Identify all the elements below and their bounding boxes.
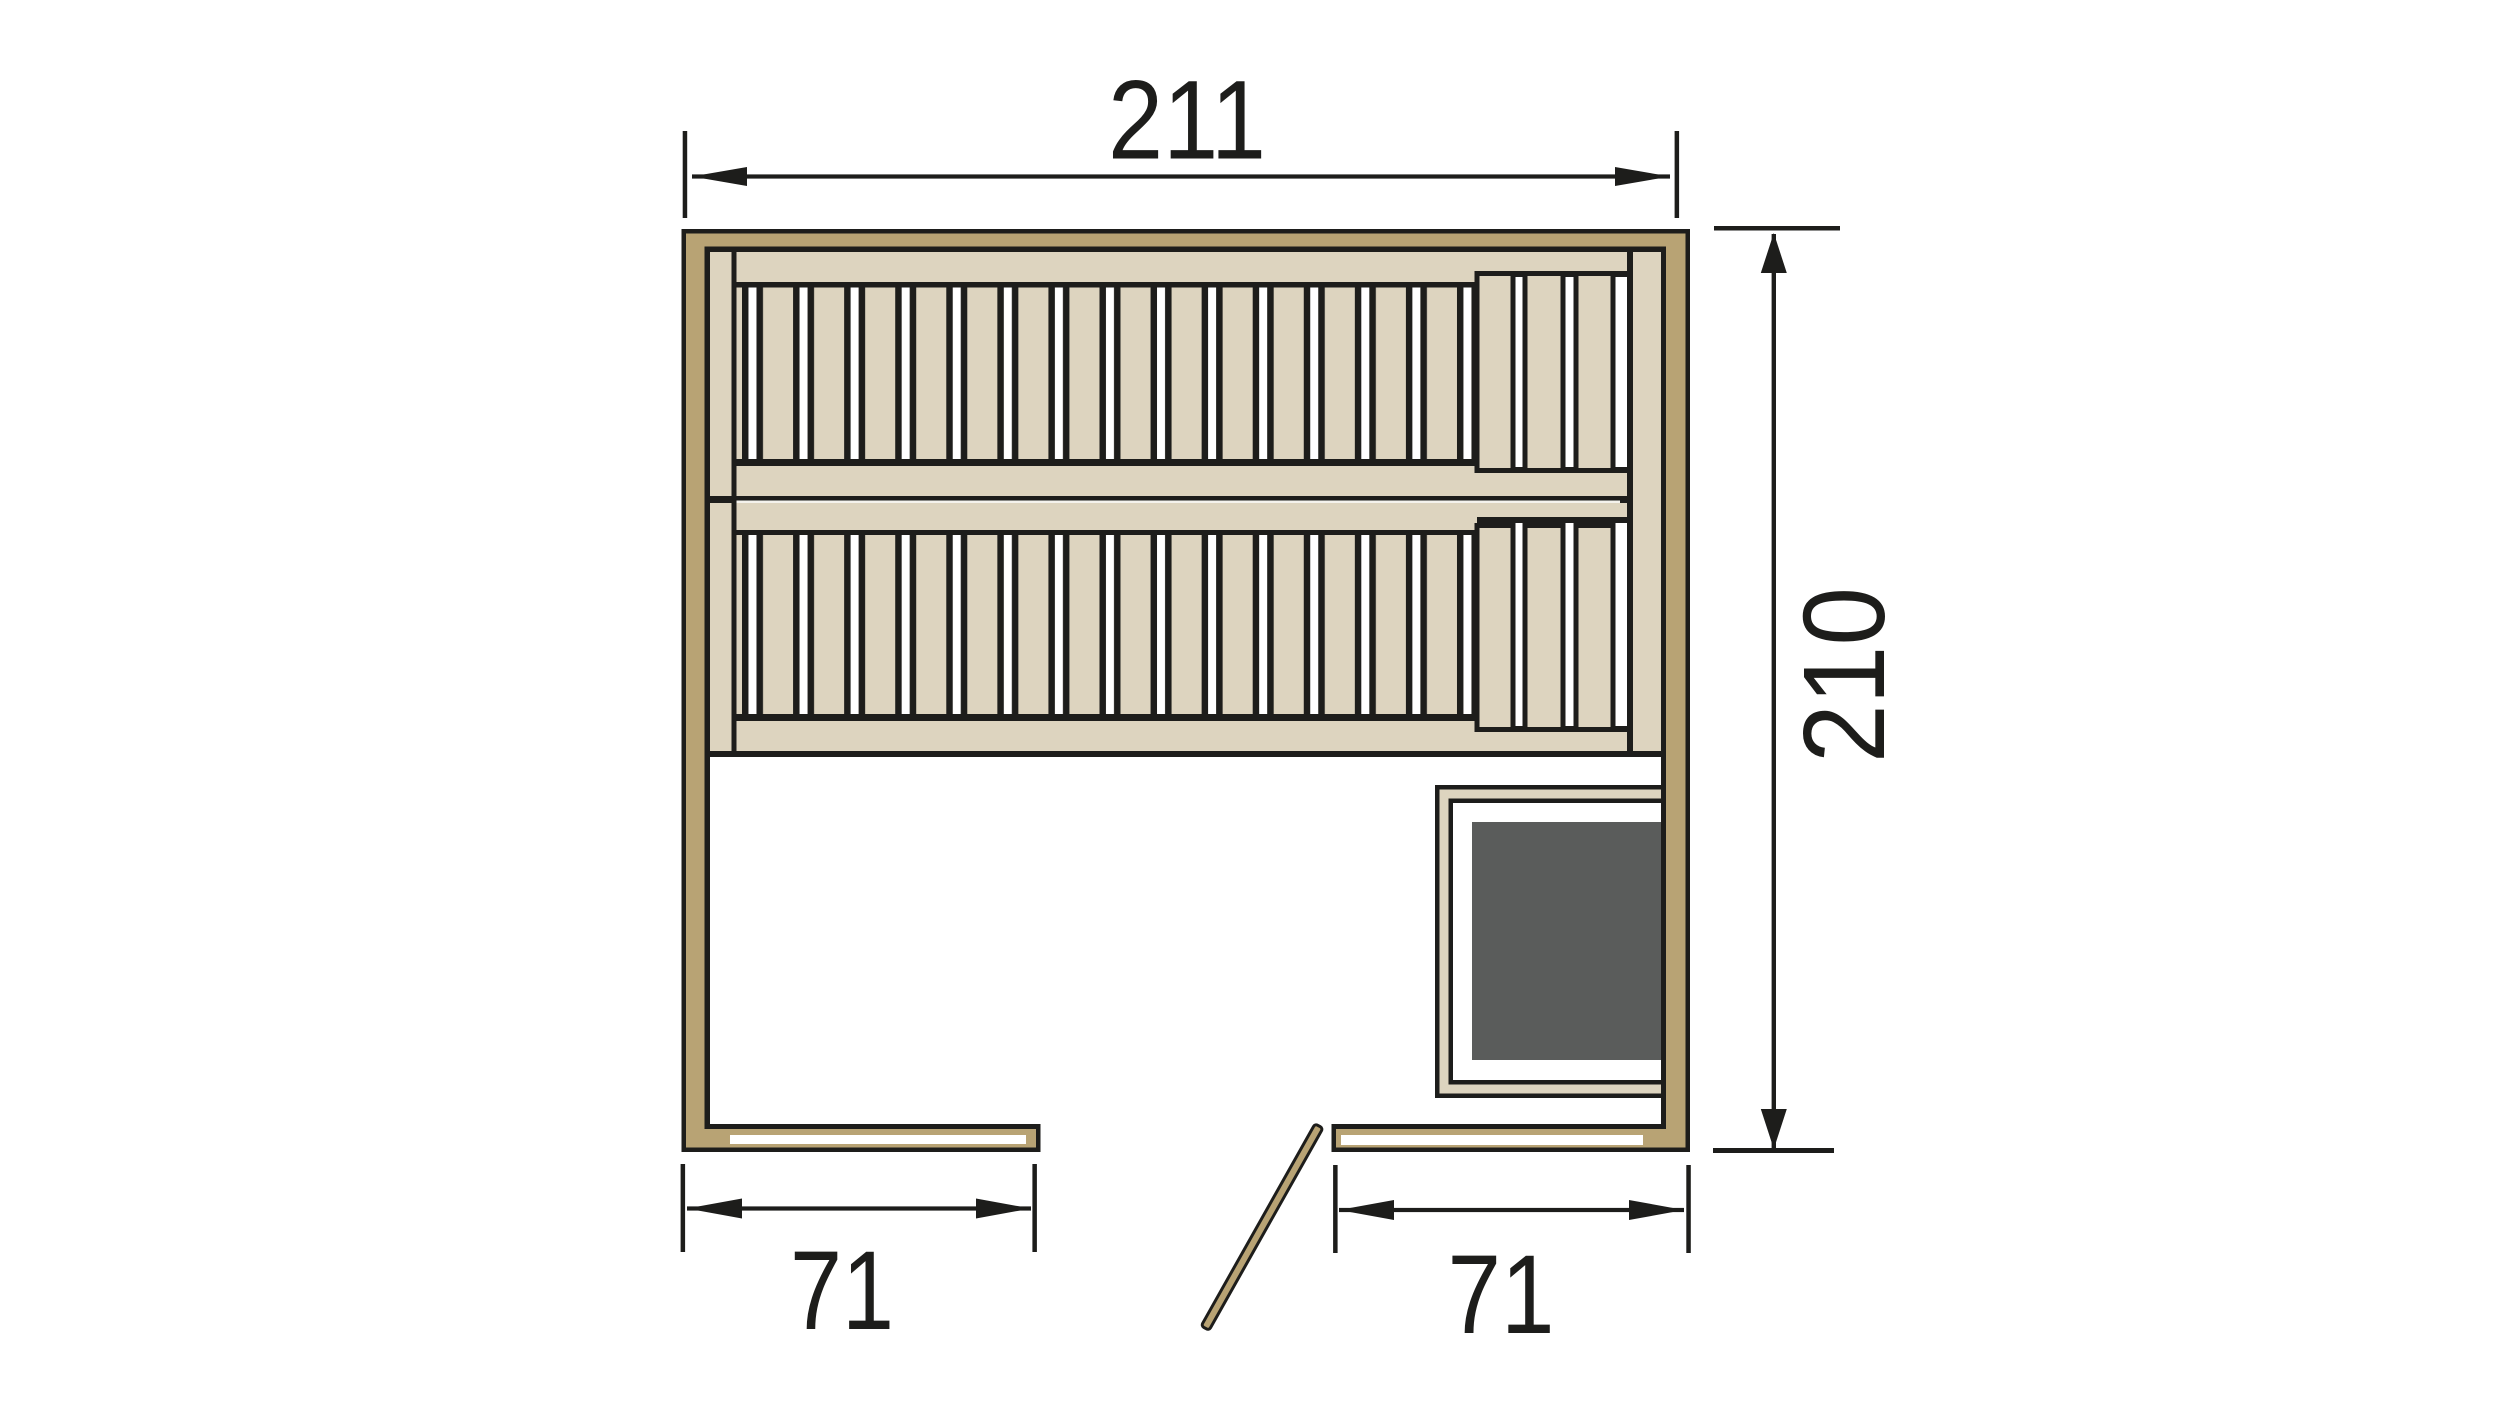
svg-text:211: 211 <box>1108 58 1266 183</box>
svg-text:71: 71 <box>790 1228 894 1353</box>
svg-text:210: 210 <box>1779 587 1909 763</box>
svg-text:71: 71 <box>1448 1232 1555 1357</box>
